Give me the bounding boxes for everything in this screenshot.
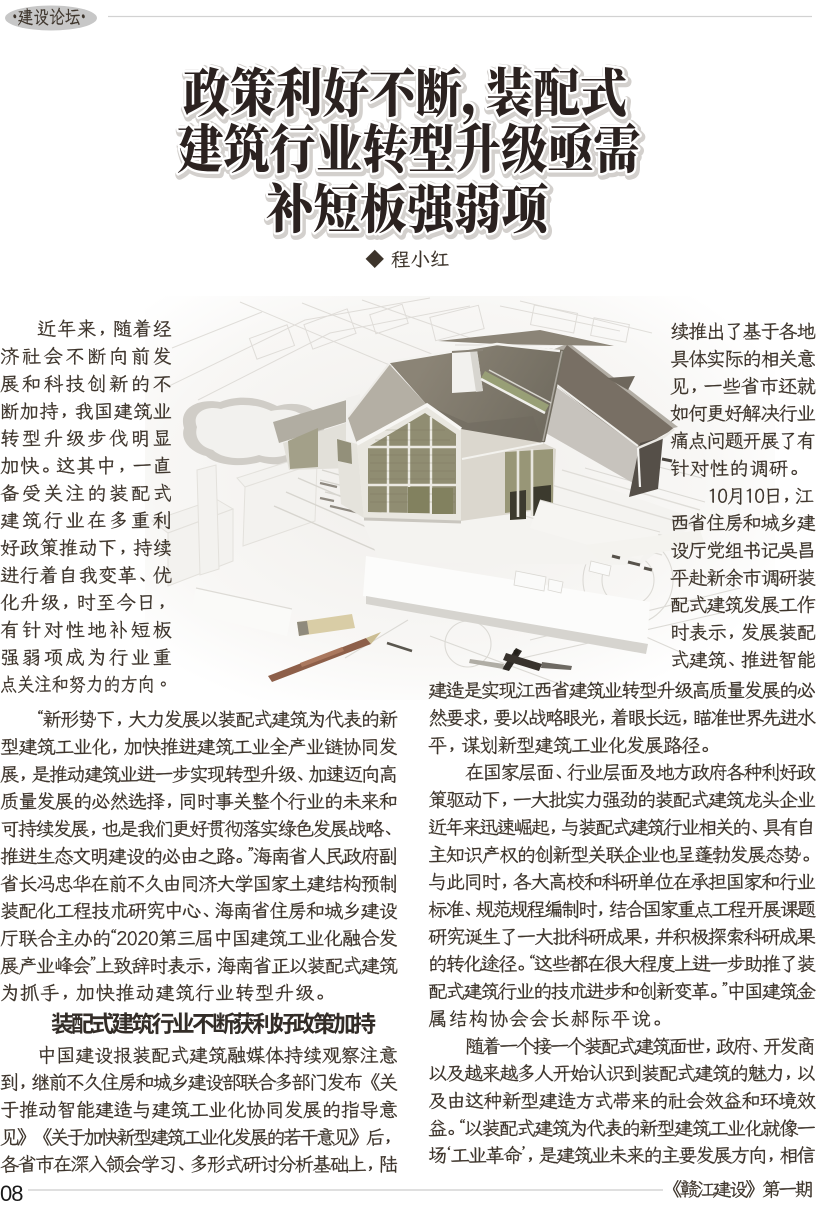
svg-text:及由这种新型建造方式带来的社会效益和环境效: 及由这种新型建造方式带来的社会效益和环境效 bbox=[428, 1088, 816, 1114]
svg-text:见》《关于加快新型建筑工业化发展的若干意见》后，: 见》《关于加快新型建筑工业化发展的若干意见》后， bbox=[0, 1124, 398, 1155]
svg-text:在国家层面、行业层面及地方政府各种利好政: 在国家层面、行业层面及地方政府各种利好政 bbox=[465, 759, 816, 790]
svg-text:西省住房和城乡建: 西省住房和城乡建 bbox=[670, 510, 816, 536]
svg-text:平，谋划新型建筑工业化发展路径。: 平，谋划新型建筑工业化发展路径。 bbox=[428, 732, 715, 763]
svg-text:如何更好解决行业: 如何更好解决行业 bbox=[670, 400, 816, 426]
svg-text:好政策推动下，持续: 好政策推动下，持续 bbox=[0, 535, 172, 566]
svg-text:进行着自我变革、优: 进行着自我变革、优 bbox=[0, 562, 172, 593]
svg-text:型建筑工业化，加快推进建筑工业全产业链协同发: 型建筑工业化，加快推进建筑工业全产业链协同发 bbox=[0, 734, 398, 765]
svg-text:可持续发展，也是我们更好贯彻落实绿色发展战略、: 可持续发展，也是我们更好贯彻落实绿色发展战略、 bbox=[0, 816, 398, 847]
svg-text:化升级，时至今日，: 化升级，时至今日， bbox=[0, 589, 172, 620]
svg-text:痛点问题开展了有: 痛点问题开展了有 bbox=[670, 428, 816, 454]
svg-text:见，一些省市还就: 见，一些省市还就 bbox=[670, 373, 816, 404]
svg-text:省长冯忠华在前不久由同济大学国家土建结构预制: 省长冯忠华在前不久由同济大学国家土建结构预制 bbox=[0, 870, 398, 896]
svg-text:设厅党组书记吴昌: 设厅党组书记吴昌 bbox=[670, 537, 816, 563]
svg-text:于推动智能建造与建筑工业化协同发展的指导意: 于推动智能建造与建筑工业化协同发展的指导意 bbox=[0, 1097, 398, 1123]
svg-text:中国建设报装配式建筑融媒体持续观察注意: 中国建设报装配式建筑融媒体持续观察注意 bbox=[37, 1042, 398, 1068]
svg-text:质量发展的必然选择，同时事关整个行业的未来和: 质量发展的必然选择，同时事关整个行业的未来和 bbox=[0, 788, 398, 819]
svg-text:《赣江建设》第一期: 《赣江建设》第一期 bbox=[663, 1176, 814, 1202]
svg-text:补短板强弱项: 补短板强弱项 bbox=[266, 168, 548, 244]
svg-text:装配式建筑行业不断获利好政策加持: 装配式建筑行业不断获利好政策加持 bbox=[51, 1005, 376, 1039]
svg-text:与此同时，各大高校和科研单位在承担国家和行业: 与此同时，各大高校和科研单位在承担国家和行业 bbox=[428, 869, 816, 900]
svg-text:益。“以装配式建筑为代表的新型建筑工业化就像一: 益。“以装配式建筑为代表的新型建筑工业化就像一 bbox=[428, 1115, 816, 1146]
svg-text:10月10日，江: 10月10日，江 bbox=[707, 482, 814, 513]
svg-text:场‘工业革命’，是建筑业未来的主要发展方向，相信: 场‘工业革命’，是建筑业未来的主要发展方向，相信 bbox=[428, 1142, 816, 1173]
svg-text:展，是推动建筑业进一步实现转型升级、加速迈向高: 展，是推动建筑业进一步实现转型升级、加速迈向高 bbox=[0, 761, 398, 792]
svg-text:的转化途径。“这些都在很大程度上进一步助推了装: 的转化途径。“这些都在很大程度上进一步助推了装 bbox=[428, 951, 816, 982]
svg-text:“新形势下，大力发展以装配式建筑为代表的新: “新形势下，大力发展以装配式建筑为代表的新 bbox=[37, 706, 398, 737]
svg-text:配式建筑发展工作: 配式建筑发展工作 bbox=[670, 592, 816, 618]
svg-text:主知识产权的创新型关联企业也呈蓬勃发展态势。: 主知识产权的创新型关联企业也呈蓬勃发展态势。 bbox=[428, 841, 816, 872]
svg-text:以及越来越多人开始认识到装配式建筑的魅力，以: 以及越来越多人开始认识到装配式建筑的魅力，以 bbox=[428, 1060, 816, 1091]
svg-text:建造是实现江西省建筑业转型升级高质量发展的必: 建造是实现江西省建筑业转型升级高质量发展的必 bbox=[428, 677, 816, 703]
svg-text:装配化工程技术研究中心、海南省住房和城乡建设: 装配化工程技术研究中心、海南省住房和城乡建设 bbox=[0, 898, 398, 929]
svg-text:随着一个接一个装配式建筑面世，政府、开发商: 随着一个接一个装配式建筑面世，政府、开发商 bbox=[465, 1033, 816, 1064]
svg-text:有针对性地补短板: 有针对性地补短板 bbox=[0, 617, 172, 643]
svg-text:点关注和努力的方向。: 点关注和努力的方向。 bbox=[0, 671, 172, 697]
svg-text:针对性的调研。: 针对性的调研。 bbox=[670, 455, 804, 486]
svg-text:08: 08 bbox=[0, 1181, 23, 1203]
svg-text:推进生态文明建设的必由之路。”海南省人民政府副: 推进生态文明建设的必由之路。”海南省人民政府副 bbox=[0, 843, 398, 874]
svg-text:具体实际的相关意: 具体实际的相关意 bbox=[670, 346, 816, 372]
svg-text:近年来迅速崛起，与装配式建筑行业相关的、具有自: 近年来迅速崛起，与装配式建筑行业相关的、具有自 bbox=[428, 814, 816, 845]
svg-text:然要求，要以战略眼光，着眼长远，瞄准世界先进水: 然要求，要以战略眼光，着眼长远，瞄准世界先进水 bbox=[428, 705, 816, 736]
svg-text:加快。这其中，一直: 加快。这其中，一直 bbox=[0, 452, 172, 483]
svg-text:◆ 程小红: ◆ 程小红 bbox=[365, 246, 449, 272]
svg-text:时表示，发展装配: 时表示，发展装配 bbox=[670, 619, 816, 650]
svg-text:到，继前不久住房和城乡建设部联合多部门发布《关: 到，继前不久住房和城乡建设部联合多部门发布《关 bbox=[0, 1069, 398, 1100]
svg-text:展产业峰会”上致辞时表示，海南省正以装配式建筑: 展产业峰会”上致辞时表示，海南省正以装配式建筑 bbox=[0, 952, 398, 983]
svg-text:厅联合主办的“2020第三届中国建筑工业化融合发: 厅联合主办的“2020第三届中国建筑工业化融合发 bbox=[0, 925, 398, 951]
svg-text:标准、规范规程编制时，结合国家重点工程开展课题: 标准、规范规程编制时，结合国家重点工程开展课题 bbox=[428, 896, 816, 927]
svg-text:属结构协会会长郝际平说。: 属结构协会会长郝际平说。 bbox=[428, 1005, 667, 1036]
svg-text:配式建筑行业的技术进步和创新变革。”中国建筑金: 配式建筑行业的技术进步和创新变革。”中国建筑金 bbox=[428, 978, 816, 1009]
svg-text:各省市在深入领会学习、多形式研讨分析基础上，陆: 各省市在深入领会学习、多形式研讨分析基础上，陆 bbox=[0, 1151, 398, 1182]
svg-text:平赴新余市调研装: 平赴新余市调研装 bbox=[670, 564, 816, 590]
svg-text:近年来，随着经: 近年来，随着经 bbox=[37, 316, 172, 347]
svg-text:续推出了基于各地: 续推出了基于各地 bbox=[670, 318, 816, 344]
svg-text:断加持，我国建筑业: 断加持，我国建筑业 bbox=[0, 398, 172, 429]
svg-text:研究诞生了一大批科研成果，并积极探索科研成果: 研究诞生了一大批科研成果，并积极探索科研成果 bbox=[428, 923, 816, 954]
svg-text:策驱动下，一大批实力强劲的装配式建筑龙头企业: 策驱动下，一大批实力强劲的装配式建筑龙头企业 bbox=[428, 787, 816, 818]
svg-text:·建设论坛·: ·建设论坛· bbox=[12, 4, 86, 30]
svg-text:式建筑、推进智能: 式建筑、推进智能 bbox=[670, 646, 816, 677]
